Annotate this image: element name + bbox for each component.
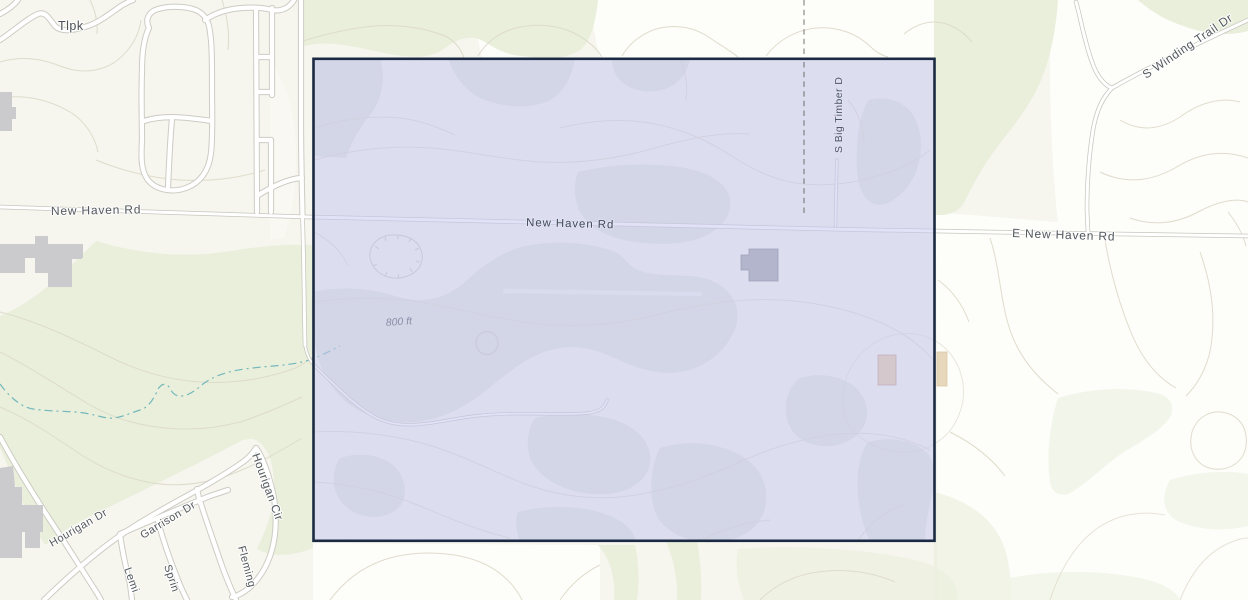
svg-text:New Haven Rd: New Haven Rd [526, 217, 614, 231]
svg-text:New Haven Rd: New Haven Rd [51, 202, 142, 218]
svg-text:800 ft: 800 ft [385, 315, 413, 329]
svg-text:Tlpk: Tlpk [58, 19, 84, 33]
svg-text:S Big Timber D: S Big Timber D [833, 77, 845, 153]
